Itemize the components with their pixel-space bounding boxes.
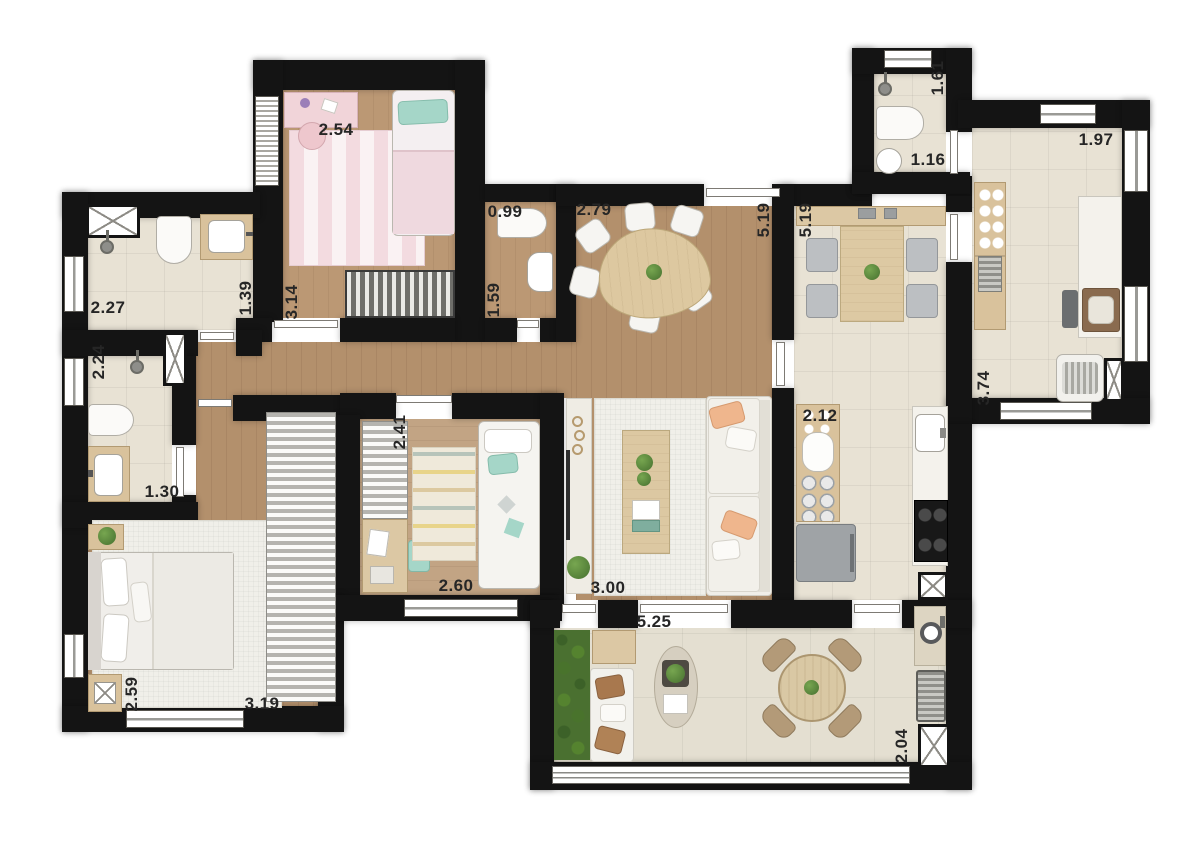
dimension-label: 1.59 bbox=[484, 283, 504, 318]
door bbox=[200, 332, 234, 340]
kitchen-chair bbox=[806, 284, 838, 318]
shower-icon bbox=[100, 240, 114, 254]
window bbox=[64, 256, 84, 312]
window bbox=[1124, 130, 1148, 192]
table-plant bbox=[804, 680, 819, 695]
faucet bbox=[246, 232, 253, 236]
window bbox=[1040, 104, 1096, 124]
sink bbox=[208, 220, 245, 253]
wall bbox=[340, 318, 455, 342]
sink bbox=[94, 454, 123, 496]
table-plant bbox=[864, 264, 880, 280]
dimension-label: 1.16 bbox=[911, 150, 946, 170]
desk-toy bbox=[300, 98, 310, 108]
entrance-door bbox=[706, 188, 780, 197]
wall bbox=[852, 172, 970, 194]
dimension-label: 3.14 bbox=[282, 285, 302, 320]
faucet bbox=[940, 428, 946, 438]
dimension-label: 1.39 bbox=[236, 281, 256, 316]
bin bbox=[1062, 290, 1078, 328]
plant bbox=[636, 454, 653, 471]
dimension-label: 2.27 bbox=[91, 298, 126, 318]
wardrobe bbox=[266, 412, 336, 702]
door bbox=[776, 342, 785, 386]
wall bbox=[485, 318, 517, 342]
kitchen-chair bbox=[906, 284, 938, 318]
wall bbox=[530, 600, 560, 628]
door bbox=[517, 320, 539, 328]
window bbox=[126, 710, 244, 728]
sideboard-item bbox=[858, 208, 876, 219]
plant bbox=[98, 527, 116, 545]
wall bbox=[253, 60, 485, 90]
coffee-table bbox=[622, 430, 670, 554]
kitchen-chair bbox=[906, 238, 938, 272]
ventilation-shaft bbox=[918, 572, 948, 600]
headboard bbox=[88, 552, 101, 670]
dimension-label: 1.30 bbox=[145, 482, 180, 502]
wall bbox=[772, 184, 794, 340]
door bbox=[396, 395, 452, 403]
faucet bbox=[88, 470, 93, 477]
dimension-label: 2.59 bbox=[122, 677, 142, 712]
wall bbox=[485, 184, 556, 202]
door bbox=[274, 320, 338, 328]
dimension-label: 0.99 bbox=[488, 202, 523, 222]
wall bbox=[556, 184, 576, 342]
dimension-label: 2.04 bbox=[892, 729, 912, 764]
pillow bbox=[600, 704, 626, 722]
window bbox=[1124, 286, 1148, 362]
ventilation-shaft bbox=[1104, 358, 1124, 402]
tv bbox=[566, 450, 570, 540]
wall bbox=[598, 600, 638, 628]
terrace-door bbox=[562, 604, 596, 613]
fridge-handle bbox=[850, 534, 854, 572]
dimension-label: 2.24 bbox=[89, 345, 109, 380]
wall bbox=[772, 388, 794, 610]
dish-rack bbox=[978, 256, 1002, 292]
window bbox=[1000, 402, 1092, 420]
ventilation-shaft bbox=[918, 724, 950, 768]
decor-rope bbox=[574, 430, 585, 441]
window bbox=[404, 599, 518, 617]
plant bbox=[666, 664, 685, 683]
tray bbox=[632, 520, 660, 532]
sink bbox=[527, 252, 553, 292]
wall bbox=[946, 196, 972, 212]
shower-icon bbox=[878, 82, 892, 96]
dimension-label: 2.60 bbox=[439, 576, 474, 596]
washer-drum bbox=[1062, 362, 1098, 394]
book bbox=[632, 500, 660, 520]
oval-coffee-table bbox=[654, 646, 698, 728]
printer bbox=[370, 566, 394, 584]
kitchen-chair bbox=[806, 238, 838, 272]
window bbox=[64, 358, 84, 406]
fridge bbox=[796, 524, 856, 582]
toilet bbox=[876, 106, 924, 140]
dimension-label: 5.19 bbox=[754, 203, 774, 238]
floor-plan: 2.54 1.61 1.97 1.16 0.99 2.79 5.19 5.19 … bbox=[0, 0, 1200, 847]
wall bbox=[540, 393, 564, 610]
shower-arm bbox=[136, 350, 139, 361]
round-sink bbox=[876, 148, 902, 174]
tray bbox=[663, 694, 688, 714]
ventilation-shaft bbox=[163, 332, 187, 386]
table-lamp bbox=[94, 682, 116, 704]
dimension-label: 3.74 bbox=[974, 371, 994, 406]
toilet bbox=[156, 216, 192, 264]
pillow bbox=[484, 429, 532, 453]
side-table bbox=[592, 630, 636, 664]
decor-rope bbox=[572, 416, 583, 427]
ventilation-shaft bbox=[86, 204, 140, 238]
pillow bbox=[487, 452, 519, 475]
dimension-label: 1.61 bbox=[928, 61, 948, 96]
dimension-label: 5.25 bbox=[637, 612, 672, 632]
shower-arm bbox=[884, 72, 887, 83]
cooktop bbox=[914, 500, 948, 562]
terrace-door bbox=[854, 604, 900, 613]
shower-arm bbox=[106, 230, 109, 241]
wall bbox=[336, 415, 360, 597]
table-flowers bbox=[646, 264, 662, 280]
round-sink bbox=[920, 622, 942, 644]
blanket bbox=[152, 553, 233, 669]
wall bbox=[946, 424, 972, 604]
faucet bbox=[940, 616, 945, 628]
wall bbox=[540, 318, 556, 342]
wall bbox=[236, 330, 262, 356]
pillow bbox=[100, 613, 129, 663]
terrace-railing bbox=[552, 766, 910, 784]
window bbox=[884, 50, 932, 68]
pillow bbox=[397, 99, 448, 126]
sideboard-item bbox=[884, 208, 897, 219]
dimension-label: 2.54 bbox=[319, 120, 354, 140]
door bbox=[950, 214, 958, 260]
pillow bbox=[100, 557, 129, 607]
barbecue-grill bbox=[916, 670, 946, 722]
plant bbox=[567, 556, 590, 579]
door bbox=[950, 130, 958, 174]
patterned-rug bbox=[412, 447, 476, 561]
laptop bbox=[366, 529, 389, 558]
dimension-label: 2.41 bbox=[390, 415, 410, 450]
wall bbox=[455, 60, 485, 342]
dimension-label: 3.00 bbox=[591, 578, 626, 598]
wall bbox=[946, 262, 972, 424]
decor-rope bbox=[572, 444, 583, 455]
dimension-label: 1.97 bbox=[1079, 130, 1114, 150]
window bbox=[255, 96, 279, 186]
pillow bbox=[711, 539, 741, 562]
plant bbox=[637, 472, 651, 486]
door bbox=[198, 399, 232, 407]
towel-roll bbox=[1088, 296, 1114, 324]
vertical-garden bbox=[554, 630, 590, 760]
wall bbox=[731, 600, 852, 628]
dimension-label: 3.19 bbox=[245, 694, 280, 714]
shower-icon bbox=[130, 360, 144, 374]
dimension-label: 5.19 bbox=[796, 203, 816, 238]
window bbox=[64, 634, 84, 678]
dimension-label: 2.79 bbox=[577, 200, 612, 220]
dimension-label: 2.12 bbox=[803, 406, 838, 426]
toilet bbox=[88, 404, 134, 436]
wardrobe bbox=[345, 270, 455, 318]
plate-stack bbox=[802, 432, 834, 472]
blanket bbox=[393, 150, 454, 234]
